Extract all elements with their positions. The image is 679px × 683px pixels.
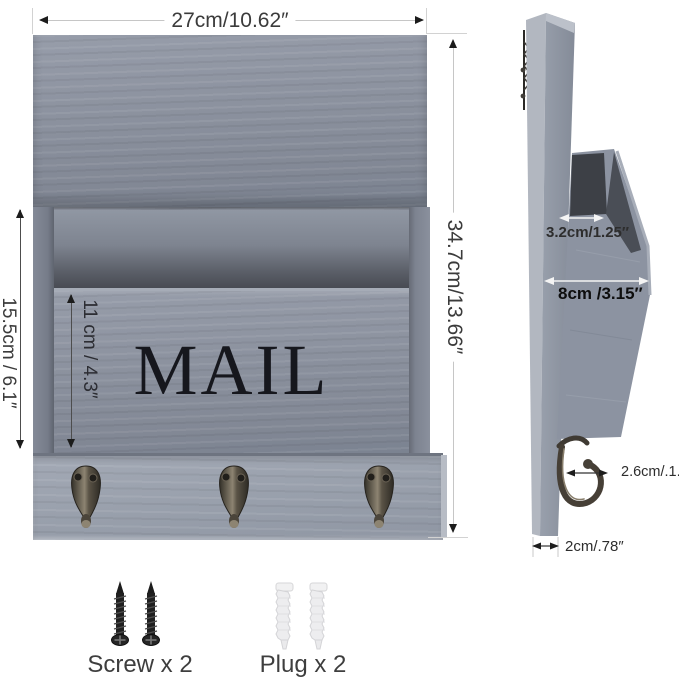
pocket-side-wall-left: [33, 207, 54, 453]
width-dimension-label: 27cm/10.62″: [164, 9, 295, 33]
screw-icon: [143, 581, 160, 646]
front-back-panel: [33, 35, 427, 207]
slot-width-label: 3.2cm/1.25″: [546, 224, 629, 241]
extension-line: [428, 537, 468, 538]
side-hook-icon: [559, 438, 601, 504]
plugs-label: Plug x 2: [243, 651, 363, 679]
depth-label: 8cm /3.15″: [558, 284, 643, 304]
wall-hook: [214, 464, 254, 532]
pocket-interior-shadow: [54, 210, 409, 288]
mail-organizer-dimension-diagram: MAIL 27cm/10.62″ 34.7cm/13.66″ 15.5cm / …: [0, 0, 679, 683]
thickness-arrow: [532, 543, 559, 550]
pocket-side-wall-right: [409, 207, 430, 453]
screw-icon: [112, 581, 129, 646]
extension-line: [426, 8, 427, 34]
thickness-label: 2cm/.78″: [565, 538, 624, 555]
extension-line: [32, 8, 33, 34]
plugs-illustration: [262, 578, 342, 653]
hook-depth-label: 2.6cm/.1.02″: [621, 464, 679, 480]
wall-hook: [66, 464, 106, 532]
plug-icon: [276, 583, 293, 649]
hook-rail-end-cap: [441, 455, 447, 537]
pocket-height-dimension-label: 15.5cm / 6.1″: [0, 290, 19, 415]
screws-label: Screw x 2: [75, 651, 205, 679]
screws-illustration: [105, 578, 175, 653]
inner-height-dimension-label: 11 cm / 4.3″: [78, 292, 100, 405]
wall-hook: [359, 464, 399, 532]
plug-icon: [310, 583, 327, 649]
pocket-height-dimension-line: [20, 210, 21, 448]
side-pocket-slot-gap: [570, 153, 607, 216]
height-dimension-label: 34.7cm/13.66″: [442, 213, 466, 362]
extension-line: [427, 33, 467, 34]
inner-height-dimension-line: [71, 295, 72, 447]
